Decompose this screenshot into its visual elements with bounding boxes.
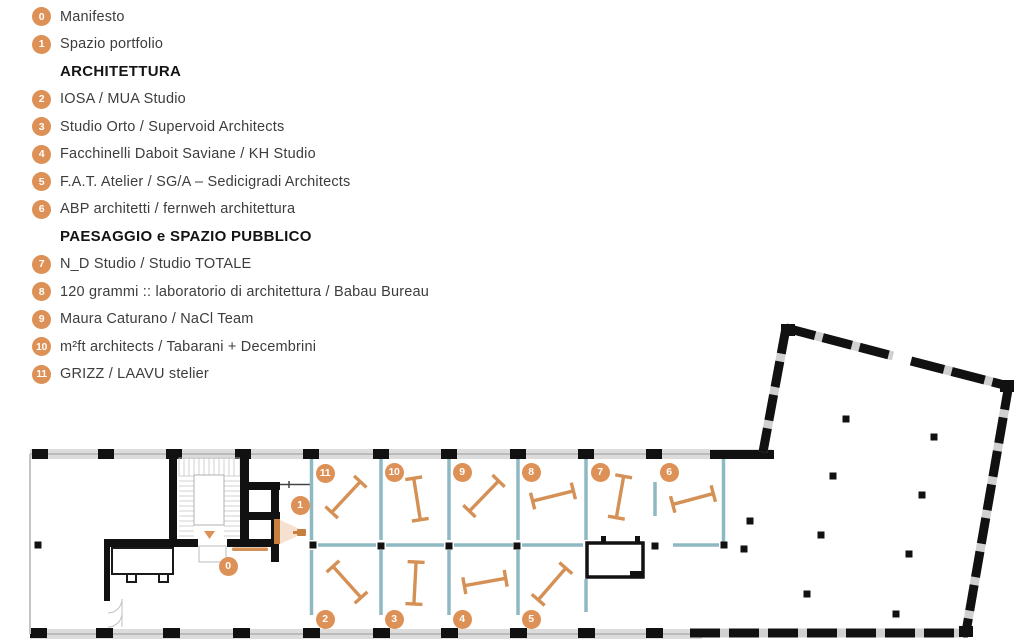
structural-column <box>652 543 659 550</box>
stair-core <box>179 458 240 536</box>
structural-column <box>830 473 837 480</box>
plan-marker-2: 2 <box>316 610 335 629</box>
booth-table <box>327 561 368 604</box>
structural-column <box>747 518 754 525</box>
booth-table <box>531 483 576 510</box>
booth-table <box>405 477 428 521</box>
entrance-arrow-icon <box>204 531 215 539</box>
structural-column <box>804 591 811 598</box>
booth-table <box>325 476 366 518</box>
structural-column <box>514 543 521 550</box>
right-hall-walls <box>690 324 1014 637</box>
booth-tables <box>325 475 715 606</box>
floor-plan-page: 0Manifesto1Spazio portfolioARCHITETTURA2… <box>0 0 1024 641</box>
booth-partitions <box>312 459 724 615</box>
plan-marker-1: 1 <box>291 496 310 515</box>
structural-column <box>35 542 42 549</box>
plan-marker-0: 0 <box>219 557 238 576</box>
structural-column <box>931 434 938 441</box>
plan-marker-4: 4 <box>453 610 472 629</box>
wing-top-wall <box>30 449 774 459</box>
structural-column <box>843 416 850 423</box>
plan-marker-11: 11 <box>316 464 335 483</box>
plan-marker-3: 3 <box>385 610 404 629</box>
plan-marker-9: 9 <box>453 463 472 482</box>
structural-column <box>919 492 926 499</box>
service-box <box>587 536 643 577</box>
booth-table <box>671 485 716 512</box>
booth-table <box>405 562 424 605</box>
structural-column <box>818 532 825 539</box>
reception-desk <box>112 548 173 582</box>
plan-marker-7: 7 <box>591 463 610 482</box>
structural-column <box>310 542 317 549</box>
structural-column <box>446 543 453 550</box>
booth-table <box>532 563 572 606</box>
manifesto-bench <box>232 548 268 552</box>
plan-marker-6: 6 <box>660 463 679 482</box>
booth-table <box>463 570 507 594</box>
floor-plan-drawing <box>0 0 1024 641</box>
structural-column <box>378 543 385 550</box>
projection-screen <box>274 519 280 544</box>
structural-column <box>893 611 900 618</box>
structural-column <box>906 551 913 558</box>
plan-marker-10: 10 <box>385 463 404 482</box>
booth-table <box>608 475 632 519</box>
structural-column <box>721 542 728 549</box>
plan-marker-5: 5 <box>522 610 541 629</box>
wing-bottom-wall <box>30 628 702 639</box>
structural-column <box>741 546 748 553</box>
door-swing-arcs <box>108 599 122 627</box>
booth-table <box>463 475 504 517</box>
plan-marker-8: 8 <box>522 463 541 482</box>
